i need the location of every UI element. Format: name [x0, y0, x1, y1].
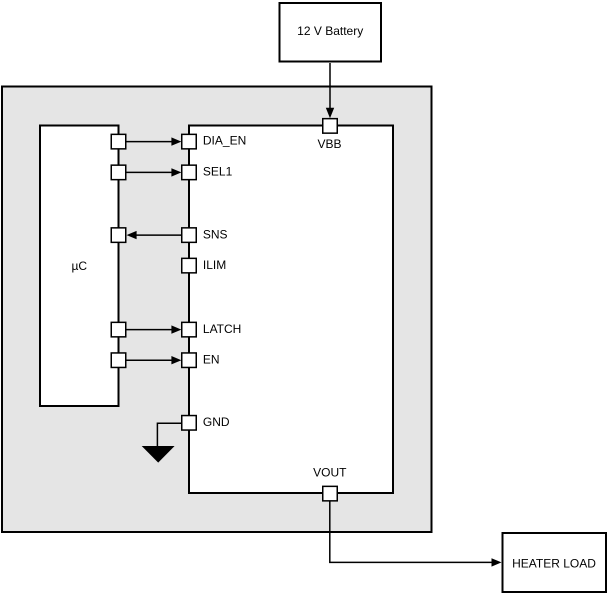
svg-text:DIA_EN: DIA_EN — [203, 134, 246, 148]
svg-text:EN: EN — [203, 352, 220, 366]
svg-text:12 V Battery: 12 V Battery — [297, 24, 363, 38]
svg-text:SNS: SNS — [203, 227, 228, 241]
svg-text:HEATER LOAD: HEATER LOAD — [512, 557, 596, 571]
svg-text:ILIM: ILIM — [203, 258, 226, 272]
svg-text:SEL1: SEL1 — [203, 165, 233, 179]
svg-text:µC: µC — [72, 259, 88, 273]
svg-text:GND: GND — [203, 415, 230, 429]
svg-text:VOUT: VOUT — [313, 465, 347, 479]
svg-text:LATCH: LATCH — [203, 322, 241, 336]
svg-text:VBB: VBB — [317, 137, 341, 151]
